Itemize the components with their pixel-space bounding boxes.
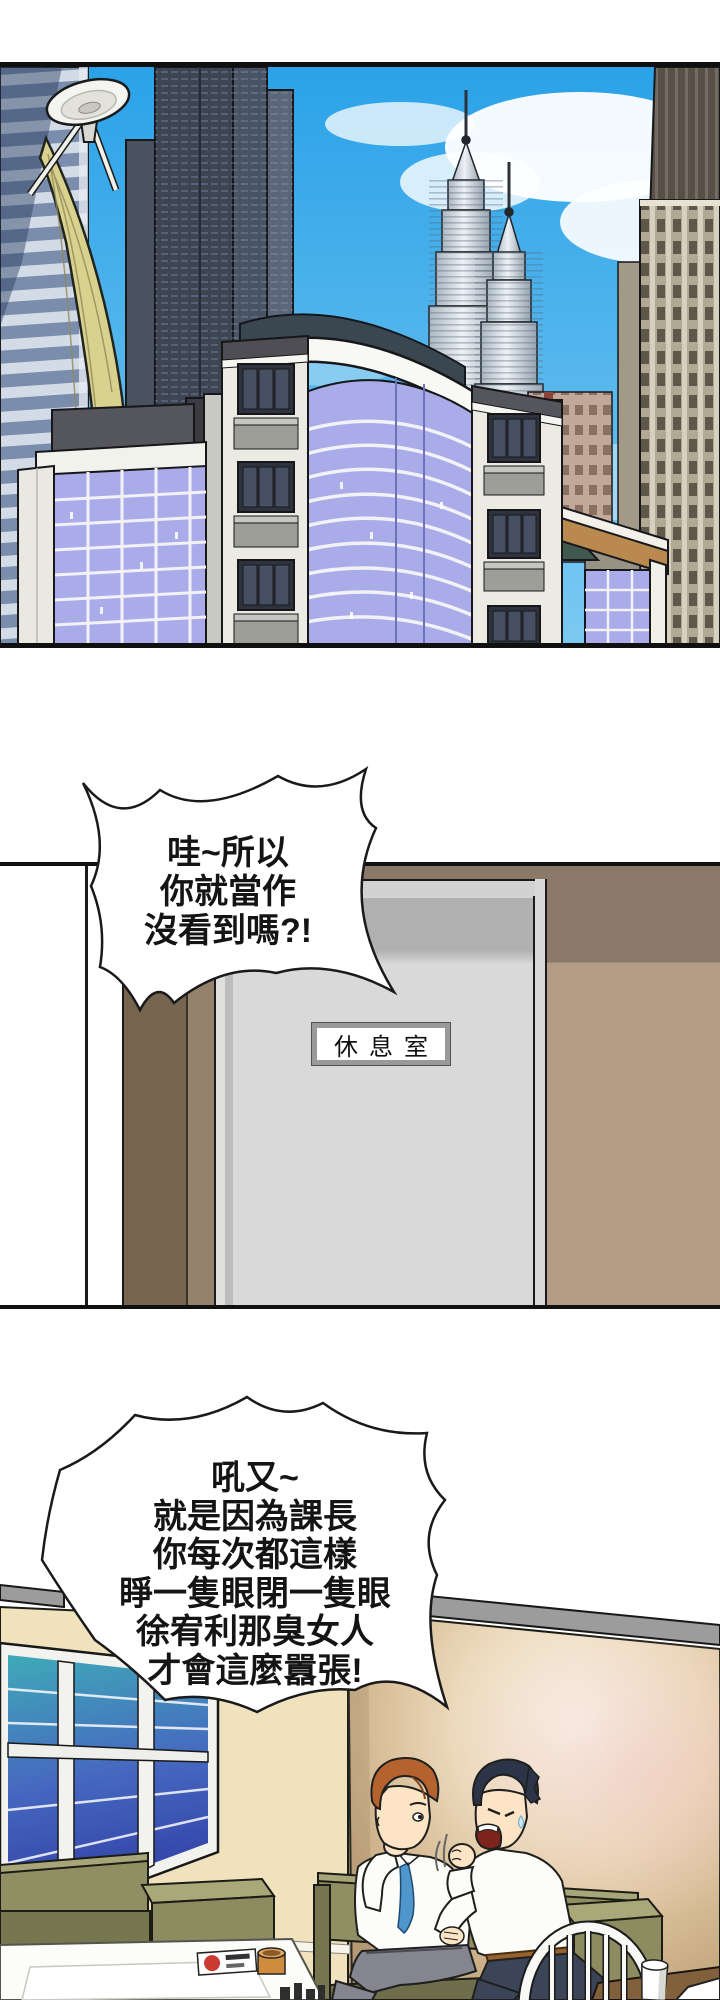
speech-line: 你每次都這樣: [35, 1536, 475, 1575]
paper-cup: [640, 1959, 668, 2000]
mug: [258, 1948, 285, 1974]
speech-bubble-1-text: 哇~所以 你就當作 沒看到嗎?!: [62, 834, 394, 951]
speech-line: 吼又~: [35, 1459, 475, 1498]
comic-page: 休息室: [0, 0, 720, 2000]
speech-line: 就是因為課長: [35, 1498, 475, 1537]
window-row: [488, 606, 540, 644]
speech-line: 沒看到嗎?!: [62, 912, 394, 951]
city-skyline-panel: [0, 62, 720, 648]
background-building: [126, 140, 158, 445]
speech-line: 睜一隻眼閉一隻眼: [35, 1575, 475, 1614]
door-frame-right: [535, 879, 547, 1305]
window-row: [234, 364, 298, 449]
speech-line: 你就當作: [62, 873, 394, 912]
right-wall: [547, 866, 720, 1305]
gripping-hand: [440, 1927, 464, 1945]
magazine: [197, 1949, 256, 1975]
office-right-wing: [472, 386, 562, 644]
office-left-wing: [222, 336, 308, 644]
speech-bubble-2-text: 吼又~ 就是因為課長 你每次都這樣 睜一隻眼閉一隻眼 徐宥利那臭女人 才會這麼囂…: [35, 1459, 475, 1691]
speech-line: 哇~所以: [62, 834, 394, 873]
window-row: [234, 560, 298, 644]
sweat-drop: [519, 1816, 524, 1828]
speech-line: 才會這麼囂張!: [35, 1652, 475, 1691]
window-row: [234, 462, 298, 547]
fist: [449, 1844, 475, 1868]
window-row: [484, 414, 544, 495]
coffee-table: [0, 1939, 325, 2000]
right-dark-tower: [650, 67, 720, 214]
window-row: [484, 510, 544, 591]
speech-line: 徐宥利那臭女人: [35, 1613, 475, 1652]
